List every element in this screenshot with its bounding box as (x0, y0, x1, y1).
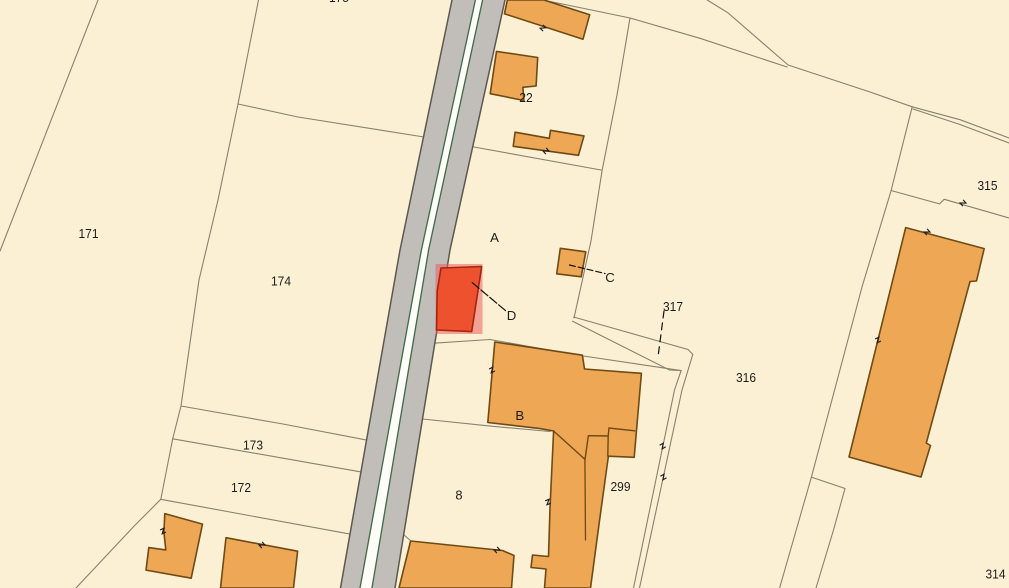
svg-text:173: 173 (243, 438, 263, 453)
svg-text:314: 314 (986, 567, 1006, 582)
svg-text:315: 315 (978, 178, 998, 193)
svg-text:B: B (515, 408, 524, 423)
svg-text:316: 316 (736, 370, 756, 385)
svg-text:317: 317 (663, 299, 683, 314)
svg-text:22: 22 (519, 90, 533, 105)
svg-text:8: 8 (455, 488, 462, 503)
svg-text:175: 175 (329, 0, 349, 5)
svg-text:D: D (507, 308, 517, 323)
svg-text:299: 299 (611, 479, 631, 494)
svg-text:171: 171 (79, 226, 99, 241)
svg-text:172: 172 (231, 480, 251, 495)
svg-text:C: C (605, 270, 615, 285)
svg-text:A: A (490, 230, 499, 245)
svg-text:174: 174 (271, 274, 291, 289)
